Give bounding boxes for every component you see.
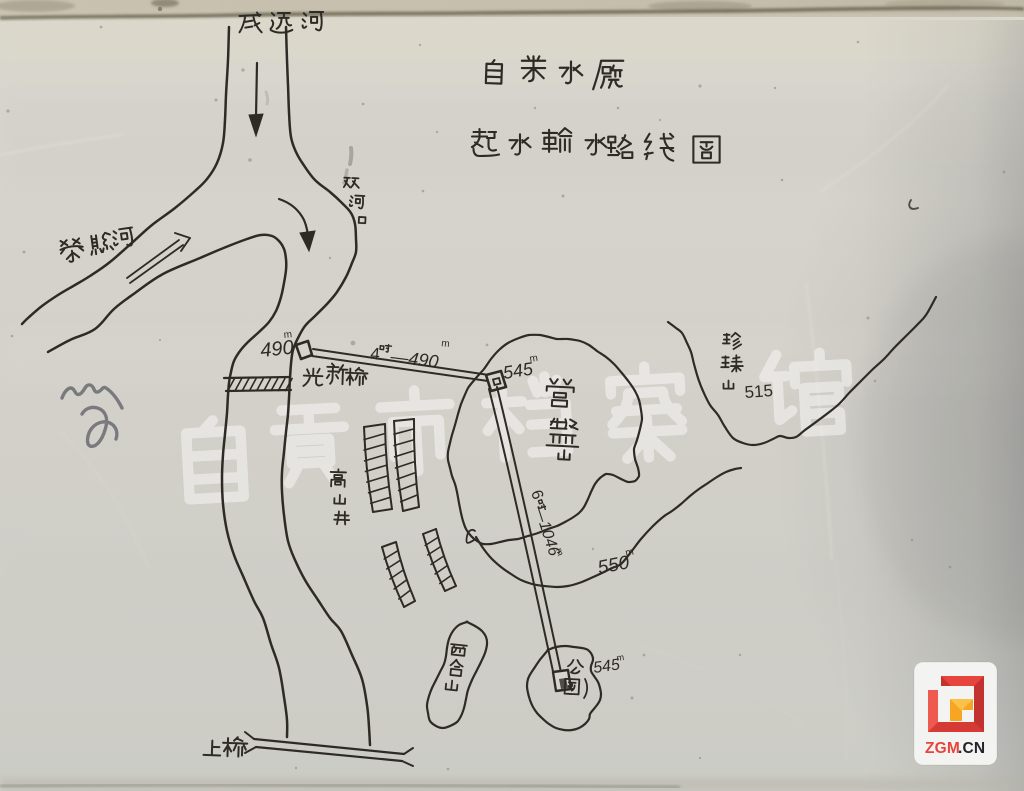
svg-text:m: m [616,652,625,663]
svg-text:ZGM: ZGM [925,740,960,757]
svg-text:m: m [529,353,539,365]
svg-text:515: 515 [744,381,774,402]
svg-text:.CN: .CN [958,740,985,757]
svg-text:4: 4 [370,344,381,364]
svg-text:m: m [441,338,451,350]
svg-text:m: m [283,329,292,341]
